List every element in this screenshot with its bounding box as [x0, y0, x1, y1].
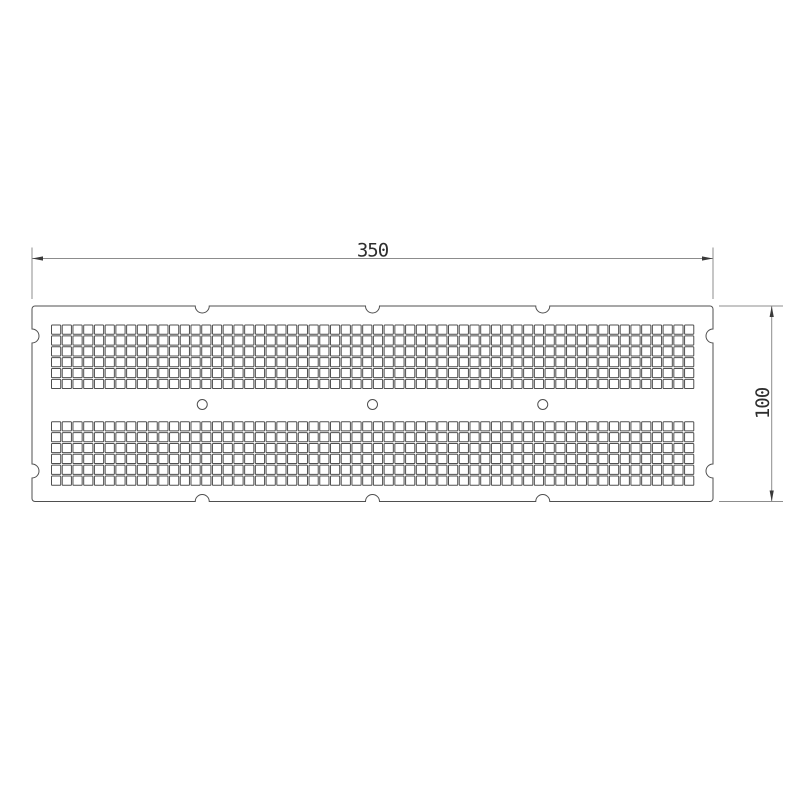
square-hole — [642, 336, 651, 345]
square-hole — [502, 336, 511, 345]
square-hole — [116, 368, 125, 377]
square-hole — [298, 336, 307, 345]
square-hole — [449, 325, 458, 334]
square-hole — [159, 325, 168, 334]
square-hole — [212, 358, 221, 367]
square-hole — [652, 422, 661, 431]
square-hole — [52, 336, 61, 345]
square-hole — [255, 443, 264, 452]
square-hole — [148, 347, 157, 356]
square-hole — [137, 358, 146, 367]
square-hole — [84, 347, 93, 356]
square-hole — [545, 379, 554, 388]
square-hole — [288, 325, 297, 334]
square-hole — [234, 465, 243, 474]
square-hole — [62, 443, 71, 452]
square-hole — [234, 422, 243, 431]
square-hole — [288, 433, 297, 442]
square-hole — [73, 465, 82, 474]
square-hole — [105, 443, 114, 452]
square-hole — [384, 422, 393, 431]
square-hole — [266, 379, 275, 388]
square-hole — [395, 379, 404, 388]
square-hole — [395, 422, 404, 431]
square-hole — [395, 347, 404, 356]
square-hole — [491, 476, 500, 485]
square-hole — [674, 476, 683, 485]
square-hole — [416, 358, 425, 367]
square-hole — [449, 454, 458, 463]
square-hole — [116, 476, 125, 485]
square-hole — [534, 347, 543, 356]
square-hole — [588, 379, 597, 388]
square-hole — [223, 325, 232, 334]
square-hole — [266, 336, 275, 345]
square-hole — [245, 443, 254, 452]
square-hole — [545, 368, 554, 377]
square-hole — [73, 454, 82, 463]
square-hole — [94, 454, 103, 463]
square-hole — [502, 325, 511, 334]
square-hole — [631, 465, 640, 474]
square-hole — [234, 476, 243, 485]
square-hole — [363, 422, 372, 431]
square-hole — [481, 476, 490, 485]
square-hole — [255, 368, 264, 377]
square-hole — [223, 433, 232, 442]
square-hole — [137, 368, 146, 377]
square-hole — [588, 476, 597, 485]
square-hole — [395, 368, 404, 377]
square-hole — [567, 465, 576, 474]
square-hole — [631, 368, 640, 377]
square-hole — [674, 422, 683, 431]
square-hole — [127, 379, 136, 388]
square-hole — [352, 379, 361, 388]
square-hole — [245, 358, 254, 367]
square-hole — [94, 379, 103, 388]
square-hole — [159, 422, 168, 431]
square-hole — [159, 347, 168, 356]
square-hole — [481, 379, 490, 388]
square-hole — [556, 336, 565, 345]
square-hole — [255, 358, 264, 367]
square-hole — [320, 443, 329, 452]
square-hole — [105, 433, 114, 442]
square-hole — [524, 454, 533, 463]
square-hole — [352, 368, 361, 377]
square-hole — [459, 465, 468, 474]
square-hole — [545, 325, 554, 334]
square-hole — [406, 443, 415, 452]
square-hole — [438, 443, 447, 452]
square-hole — [685, 443, 694, 452]
square-hole — [105, 325, 114, 334]
square-hole — [459, 347, 468, 356]
square-hole — [438, 465, 447, 474]
square-hole — [384, 368, 393, 377]
square-hole — [502, 422, 511, 431]
square-hole — [62, 325, 71, 334]
square-hole — [609, 454, 618, 463]
square-hole — [384, 347, 393, 356]
square-hole — [491, 358, 500, 367]
square-hole — [631, 443, 640, 452]
square-hole — [288, 476, 297, 485]
square-hole — [620, 379, 629, 388]
square-hole — [330, 443, 339, 452]
square-hole — [491, 443, 500, 452]
square-hole — [609, 347, 618, 356]
square-hole — [137, 325, 146, 334]
square-hole — [609, 422, 618, 431]
square-hole — [352, 358, 361, 367]
square-hole — [438, 347, 447, 356]
square-hole — [363, 454, 372, 463]
square-hole — [534, 454, 543, 463]
square-hole — [652, 347, 661, 356]
square-hole — [137, 476, 146, 485]
square-hole — [341, 347, 350, 356]
square-hole — [577, 347, 586, 356]
square-hole — [534, 368, 543, 377]
square-hole — [330, 476, 339, 485]
square-hole — [202, 433, 211, 442]
square-hole — [395, 325, 404, 334]
square-hole — [470, 443, 479, 452]
square-hole — [491, 347, 500, 356]
square-hole — [663, 336, 672, 345]
square-hole — [266, 325, 275, 334]
square-hole — [470, 422, 479, 431]
square-hole — [556, 347, 565, 356]
square-hole — [674, 379, 683, 388]
square-hole — [52, 465, 61, 474]
square-hole — [212, 422, 221, 431]
square-hole — [663, 347, 672, 356]
square-hole — [127, 422, 136, 431]
square-hole — [588, 347, 597, 356]
square-hole — [545, 454, 554, 463]
square-hole — [652, 454, 661, 463]
square-hole — [384, 465, 393, 474]
square-hole — [556, 476, 565, 485]
square-hole — [84, 465, 93, 474]
square-hole — [416, 347, 425, 356]
square-hole — [406, 336, 415, 345]
square-hole — [663, 379, 672, 388]
square-hole — [652, 476, 661, 485]
square-hole — [642, 379, 651, 388]
square-hole — [416, 476, 425, 485]
square-hole — [191, 379, 200, 388]
square-hole — [212, 347, 221, 356]
square-hole — [491, 465, 500, 474]
square-hole — [652, 325, 661, 334]
square-hole — [513, 368, 522, 377]
square-hole — [309, 325, 318, 334]
square-hole — [352, 476, 361, 485]
square-hole — [116, 325, 125, 334]
square-hole — [170, 465, 179, 474]
square-hole — [105, 358, 114, 367]
square-hole — [652, 443, 661, 452]
square-hole — [459, 422, 468, 431]
square-hole — [309, 454, 318, 463]
square-hole — [180, 422, 189, 431]
square-hole — [384, 454, 393, 463]
square-hole — [567, 347, 576, 356]
square-hole — [524, 422, 533, 431]
square-hole — [406, 433, 415, 442]
square-hole — [255, 379, 264, 388]
square-hole — [652, 358, 661, 367]
square-hole — [502, 358, 511, 367]
square-hole — [491, 368, 500, 377]
square-hole — [620, 443, 629, 452]
square-hole — [416, 443, 425, 452]
square-hole — [577, 433, 586, 442]
square-hole — [320, 358, 329, 367]
square-hole — [609, 379, 618, 388]
square-hole — [170, 443, 179, 452]
square-hole — [234, 347, 243, 356]
square-hole — [449, 465, 458, 474]
square-hole — [245, 325, 254, 334]
square-hole — [502, 454, 511, 463]
square-hole — [255, 454, 264, 463]
square-hole — [309, 476, 318, 485]
square-hole — [513, 347, 522, 356]
square-hole — [341, 325, 350, 334]
square-hole — [62, 476, 71, 485]
square-hole — [438, 336, 447, 345]
square-hole — [277, 476, 286, 485]
square-hole — [363, 476, 372, 485]
square-hole — [599, 476, 608, 485]
square-hole — [588, 433, 597, 442]
square-hole — [223, 368, 232, 377]
square-hole — [663, 433, 672, 442]
square-hole — [255, 476, 264, 485]
square-hole — [148, 422, 157, 431]
square-hole — [341, 454, 350, 463]
square-hole — [674, 368, 683, 377]
square-hole — [534, 379, 543, 388]
square-hole — [159, 433, 168, 442]
square-hole — [223, 443, 232, 452]
square-hole — [105, 336, 114, 345]
square-hole — [330, 347, 339, 356]
square-hole — [62, 347, 71, 356]
square-hole — [567, 454, 576, 463]
square-hole — [298, 358, 307, 367]
square-hole — [170, 379, 179, 388]
square-hole — [395, 454, 404, 463]
round-hole — [368, 400, 378, 410]
round-hole — [538, 400, 548, 410]
square-hole — [416, 422, 425, 431]
square-hole — [674, 465, 683, 474]
square-hole — [191, 465, 200, 474]
square-hole — [427, 433, 436, 442]
square-hole — [406, 454, 415, 463]
square-hole — [534, 358, 543, 367]
square-hole — [438, 379, 447, 388]
square-hole — [449, 422, 458, 431]
square-hole — [449, 358, 458, 367]
square-hole — [438, 325, 447, 334]
square-hole — [266, 443, 275, 452]
square-hole — [191, 347, 200, 356]
square-hole — [266, 347, 275, 356]
square-hole — [685, 379, 694, 388]
square-hole — [202, 454, 211, 463]
square-hole — [577, 476, 586, 485]
square-hole — [481, 465, 490, 474]
square-hole — [170, 476, 179, 485]
square-hole — [341, 443, 350, 452]
square-hole — [298, 476, 307, 485]
square-hole — [277, 358, 286, 367]
square-hole — [599, 422, 608, 431]
square-hole — [352, 347, 361, 356]
square-hole — [84, 443, 93, 452]
square-hole — [556, 358, 565, 367]
square-hole — [556, 422, 565, 431]
square-hole — [642, 358, 651, 367]
square-hole — [545, 476, 554, 485]
square-hole — [73, 347, 82, 356]
square-hole — [609, 336, 618, 345]
square-hole — [288, 368, 297, 377]
square-hole — [524, 465, 533, 474]
square-hole — [277, 443, 286, 452]
square-hole — [148, 325, 157, 334]
square-hole — [223, 347, 232, 356]
square-hole — [373, 422, 382, 431]
square-hole — [191, 358, 200, 367]
square-hole — [341, 368, 350, 377]
square-hole — [148, 476, 157, 485]
square-hole — [234, 433, 243, 442]
square-hole — [309, 379, 318, 388]
square-hole — [652, 433, 661, 442]
square-hole — [685, 476, 694, 485]
height-dimension-label: 100 — [752, 387, 774, 419]
square-hole — [459, 476, 468, 485]
square-hole — [73, 476, 82, 485]
square-hole — [567, 422, 576, 431]
square-hole — [234, 454, 243, 463]
square-hole — [84, 454, 93, 463]
square-hole — [298, 422, 307, 431]
square-hole — [427, 454, 436, 463]
square-hole — [685, 433, 694, 442]
square-hole — [73, 325, 82, 334]
square-hole — [620, 368, 629, 377]
square-hole — [234, 358, 243, 367]
square-hole — [223, 379, 232, 388]
square-hole — [642, 325, 651, 334]
square-hole — [288, 465, 297, 474]
square-hole — [202, 368, 211, 377]
square-hole — [330, 325, 339, 334]
square-hole — [277, 347, 286, 356]
square-hole — [202, 465, 211, 474]
square-hole — [642, 476, 651, 485]
square-hole — [556, 368, 565, 377]
square-hole — [116, 336, 125, 345]
square-hole — [148, 379, 157, 388]
square-hole — [352, 336, 361, 345]
square-hole — [642, 347, 651, 356]
square-hole — [170, 422, 179, 431]
square-hole — [94, 433, 103, 442]
square-hole — [298, 465, 307, 474]
square-hole — [330, 433, 339, 442]
square-hole — [52, 422, 61, 431]
square-hole — [341, 433, 350, 442]
square-hole — [663, 325, 672, 334]
square-hole — [416, 336, 425, 345]
square-hole — [406, 379, 415, 388]
square-hole — [663, 443, 672, 452]
square-hole — [94, 476, 103, 485]
square-hole — [406, 368, 415, 377]
square-hole — [395, 465, 404, 474]
square-hole — [320, 454, 329, 463]
square-hole — [159, 336, 168, 345]
square-hole — [631, 422, 640, 431]
square-hole — [513, 476, 522, 485]
square-hole — [320, 336, 329, 345]
square-hole — [620, 336, 629, 345]
square-hole — [202, 379, 211, 388]
square-hole — [191, 422, 200, 431]
square-hole — [170, 336, 179, 345]
square-hole — [137, 465, 146, 474]
square-hole — [180, 379, 189, 388]
square-hole — [52, 454, 61, 463]
square-hole — [459, 336, 468, 345]
square-hole — [406, 465, 415, 474]
square-hole — [567, 433, 576, 442]
square-hole — [491, 379, 500, 388]
square-hole — [406, 476, 415, 485]
square-hole — [438, 422, 447, 431]
square-hole — [609, 476, 618, 485]
square-hole — [470, 476, 479, 485]
square-hole — [459, 325, 468, 334]
square-hole — [320, 368, 329, 377]
square-hole — [352, 443, 361, 452]
square-hole — [395, 358, 404, 367]
square-hole — [685, 368, 694, 377]
square-hole — [170, 454, 179, 463]
square-hole — [223, 358, 232, 367]
square-hole — [642, 368, 651, 377]
square-hole — [52, 325, 61, 334]
square-hole — [84, 358, 93, 367]
square-hole — [363, 336, 372, 345]
square-hole — [685, 454, 694, 463]
square-hole — [481, 443, 490, 452]
square-hole — [84, 422, 93, 431]
square-hole — [84, 476, 93, 485]
square-hole — [685, 347, 694, 356]
square-hole — [116, 433, 125, 442]
